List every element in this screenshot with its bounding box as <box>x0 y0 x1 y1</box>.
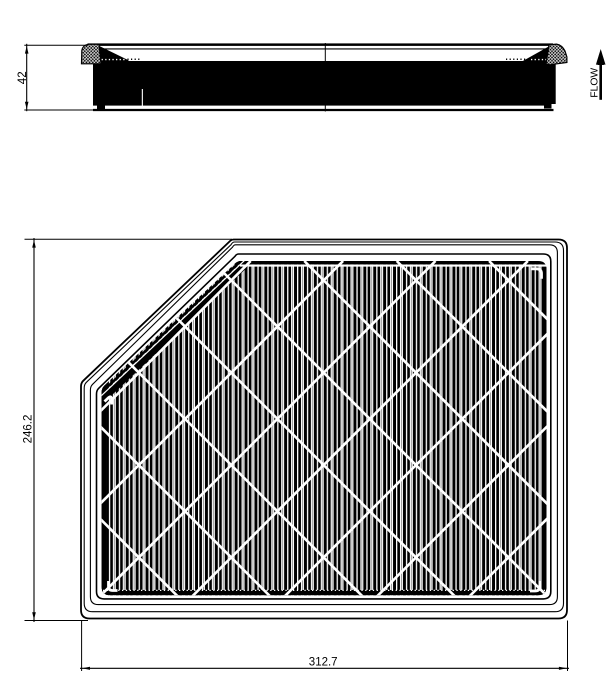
svg-text:FLOW: FLOW <box>589 68 600 98</box>
svg-text:42: 42 <box>17 71 29 84</box>
svg-text:312.7: 312.7 <box>309 657 338 669</box>
svg-text:246.2: 246.2 <box>22 415 34 444</box>
